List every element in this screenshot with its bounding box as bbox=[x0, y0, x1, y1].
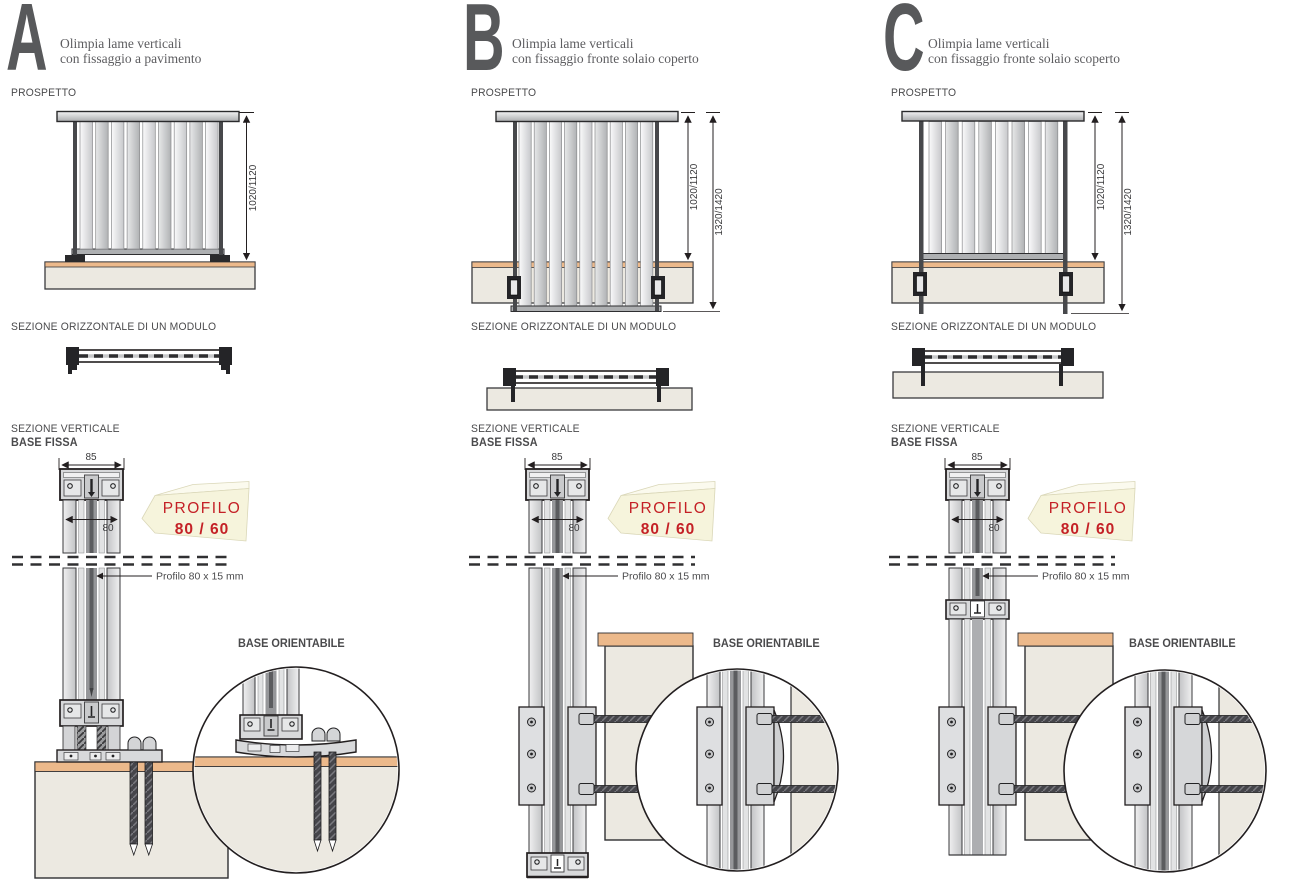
profile-width-dim: 80 bbox=[568, 523, 580, 534]
bottom-cap bbox=[527, 853, 588, 877]
elevation-height-dim: 1020/1120 bbox=[248, 164, 259, 211]
top-width-dim: 85 bbox=[551, 452, 563, 463]
profile-callout: PROFILO 80 / 60 bbox=[1028, 482, 1135, 542]
profile-note: Profilo 80 x 15 mm bbox=[1042, 571, 1130, 583]
profile-note: Profilo 80 x 15 mm bbox=[156, 571, 244, 583]
variant-b: B Olimpia lame verticali con fissaggio f… bbox=[455, 0, 885, 890]
bottom-rail-cap bbox=[946, 600, 1009, 619]
post-lower bbox=[63, 568, 120, 700]
elevation-height-dim: 1020/1120 bbox=[1096, 163, 1107, 210]
diagram-b: 1020/1120 1320/1420 85 bbox=[455, 0, 885, 890]
callout-title: PROFILO bbox=[629, 500, 708, 517]
variant-c: C Olimpia lame verticali con fissaggio f… bbox=[875, 0, 1294, 890]
callout-title: PROFILO bbox=[1049, 500, 1128, 517]
callout-title: PROFILO bbox=[163, 500, 242, 517]
profile-callout: PROFILO 80 / 60 bbox=[608, 482, 715, 542]
callout-size: 80 / 60 bbox=[1061, 521, 1115, 538]
elevation-total-height-dim: 1320/1420 bbox=[1123, 188, 1134, 236]
variant-a: A Olimpia lame verticali con fissaggio a… bbox=[0, 0, 430, 890]
elevation-drawing: 1020/1120 bbox=[45, 112, 259, 290]
module-section-drawing bbox=[893, 348, 1103, 398]
elevation-drawing: 1020/1120 1320/1420 bbox=[892, 112, 1134, 315]
elevation-total-height-dim: 1320/1420 bbox=[714, 188, 725, 236]
top-width-dim: 85 bbox=[85, 452, 97, 463]
module-section-drawing bbox=[66, 347, 232, 374]
module-section-drawing bbox=[487, 368, 692, 410]
post-mid bbox=[949, 568, 1006, 600]
vertical-section-drawing: 85 80 PROFILO bbox=[889, 452, 1294, 890]
callout-size: 80 / 60 bbox=[641, 521, 695, 538]
vertical-section-drawing: 85 80 PROFILO bbox=[12, 452, 402, 878]
vertical-section-drawing: 85 80 PROFILO bbox=[469, 452, 885, 890]
elevation-height-dim: 1020/1120 bbox=[689, 163, 700, 210]
profile-note: Profilo 80 x 15 mm bbox=[622, 571, 710, 583]
diagram-c: 1020/1120 1320/1420 85 bbox=[875, 0, 1294, 890]
diagram-a: 1020/1120 85 bbox=[0, 0, 430, 890]
profile-width-dim: 80 bbox=[988, 523, 1000, 534]
top-width-dim: 85 bbox=[971, 452, 983, 463]
profile-callout: PROFILO 80 / 60 bbox=[142, 482, 249, 542]
callout-size: 80 / 60 bbox=[175, 521, 229, 538]
elevation-drawing: 1020/1120 1320/1420 bbox=[472, 112, 725, 312]
profile-width-dim: 80 bbox=[102, 523, 114, 534]
technical-sheet: A Olimpia lame verticali con fissaggio a… bbox=[0, 0, 1294, 890]
